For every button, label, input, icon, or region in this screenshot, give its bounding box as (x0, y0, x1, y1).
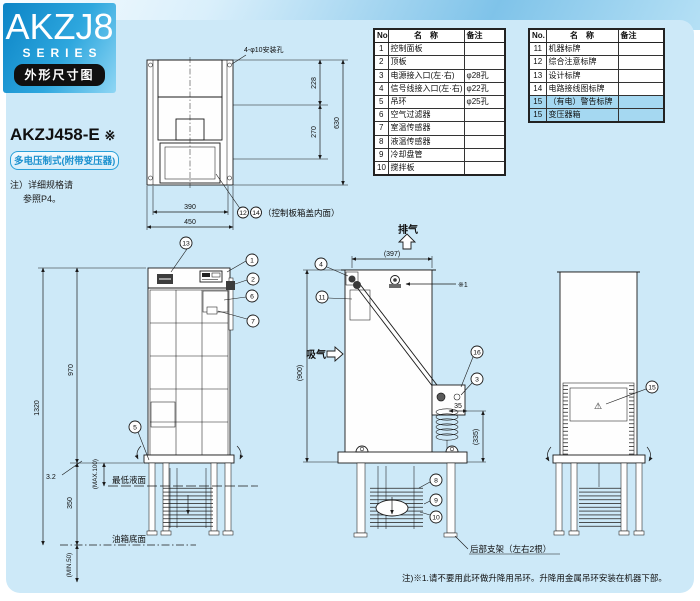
cell-no: 13 (529, 69, 546, 82)
callout-5: 5 (133, 425, 137, 432)
callout-3: 3 (475, 377, 479, 384)
cell-remark: φ22孔 (464, 82, 505, 95)
table-header-row: No. 名 称 备注 (374, 29, 505, 43)
col-header-name: 名 称 (546, 29, 618, 43)
cell-remark (618, 43, 664, 56)
dim-228-label: 228 (311, 77, 318, 89)
table-row: 10搅拌板 (374, 161, 505, 175)
cell-remark (618, 109, 664, 123)
dim-350-label: 350 (67, 497, 74, 509)
side-view-drawing: 排气 ※1 吸气 (397) (297, 223, 560, 554)
callout-16: 16 (473, 350, 481, 357)
cell-name: 顶板 (388, 56, 464, 69)
model-ref-mark: ※ (105, 128, 116, 143)
min-50-label: (MIN.50) (66, 553, 73, 578)
cell-remark (464, 56, 505, 69)
cell-name: 设计标牌 (546, 69, 618, 82)
callout-9: 9 (434, 498, 438, 505)
table-row: 7室温传感器 (374, 122, 505, 135)
cell-no: 2 (374, 56, 388, 69)
spec-note-line2: 参照P4。 (10, 193, 160, 207)
cell-no: 7 (374, 122, 388, 135)
table-row: 1控制面板 (374, 43, 505, 56)
dim-3-2-label: 3.2 (46, 474, 56, 481)
cell-name: 控制面板 (388, 43, 464, 56)
warning-triangle-icon: ⚠ (594, 401, 602, 411)
dim-900-label: (900) (297, 365, 304, 381)
callout-13: 13 (182, 241, 190, 248)
callout-15: 15 (648, 385, 656, 392)
col-header-no: No. (529, 29, 546, 43)
tank-bottom-label: 油箱底面 (112, 534, 147, 544)
cell-name: 信号线接入口(左·右) (388, 82, 464, 95)
cell-no: 11 (529, 43, 546, 56)
series-logo-subtitle: SERIES (3, 46, 116, 60)
table-row-highlighted: 15变压器箱 (529, 109, 664, 123)
callout-10: 10 (432, 515, 440, 522)
table-row: 5吊环φ25孔 (374, 95, 505, 108)
footer-note: 注)※1.请不要用此环做升降用吊环。升降用金属吊环安装在机器下部。 (402, 572, 667, 584)
table-row: 3电源接入口(左·右)φ28孔 (374, 69, 505, 82)
min-liquid-label: 最低液面 (112, 475, 147, 485)
spec-note-line1: 注）详细规格请 (10, 179, 160, 193)
callout-6: 6 (250, 294, 254, 301)
callout-note: （控制板箱盖内面） (263, 208, 340, 218)
cell-name: 室温传感器 (388, 122, 464, 135)
table-row: 13设计标牌 (529, 69, 664, 82)
callout-2: 2 (251, 277, 255, 284)
cell-no: 14 (529, 82, 546, 95)
table-row: 11机器标牌 (529, 43, 664, 56)
cell-no: 8 (374, 135, 388, 148)
dim-270-label: 270 (311, 126, 318, 138)
cell-no: 3 (374, 69, 388, 82)
front-view-drawing: 970 1320 350 3.2 (MAX.100) 最低液面 油箱底面 (MI… (34, 237, 259, 582)
variant-badge: 多电压制式(附带变压器) (10, 151, 119, 170)
table-header-row: No. 名 称 备注 (529, 29, 664, 43)
section-badge: 外形尺寸图 (14, 64, 104, 86)
rear-bracket-label: 后部支架（左右2根） (470, 544, 551, 554)
table-row: 6空气过滤器 (374, 109, 505, 122)
callout-7: 7 (251, 319, 255, 326)
col-header-name: 名 称 (388, 29, 464, 43)
intake-label: 吸气 (306, 348, 326, 361)
cell-name: 变压器箱 (546, 109, 618, 123)
callout-12: 12 (239, 210, 247, 217)
dim-397-label: (397) (384, 251, 400, 258)
cell-name: 电路接线图标牌 (546, 82, 618, 95)
table-row: 4信号线接入口(左·右)φ22孔 (374, 82, 505, 95)
dim-1320-label: 1320 (34, 400, 41, 416)
cell-name: 搅拌板 (388, 161, 464, 175)
cell-name: 冷却盘管 (388, 148, 464, 161)
cell-no: 4 (374, 82, 388, 95)
col-header-remark: 备注 (464, 29, 505, 43)
cell-no: 9 (374, 148, 388, 161)
col-header-remark: 备注 (618, 29, 664, 43)
callout-14: 14 (252, 210, 260, 217)
table-row: 8液温传感器 (374, 135, 505, 148)
table-row: 9冷却盘管 (374, 148, 505, 161)
cell-remark (618, 82, 664, 95)
cell-name: 综合注意标牌 (546, 56, 618, 69)
top-view-drawing: 228 270 630 390 450 4-φ10安装孔 12 14 （控制板箱… (147, 45, 348, 230)
cell-no: 10 (374, 161, 388, 175)
cell-remark (464, 109, 505, 122)
dim-390-label: 390 (184, 204, 196, 211)
cell-name: 空气过滤器 (388, 109, 464, 122)
cell-no: 12 (529, 56, 546, 69)
cell-remark: φ25孔 (464, 95, 505, 108)
table-row-highlighted: 15（有电）警告标牌 (529, 95, 664, 108)
callout-1: 1 (250, 258, 254, 265)
table-row: 14电路接线图标牌 (529, 82, 664, 95)
dim-335-label: (335) (473, 429, 480, 445)
callout-8: 8 (434, 478, 438, 485)
table-row: 2顶板 (374, 56, 505, 69)
cell-remark (618, 95, 664, 108)
parts-table-right: No. 名 称 备注 11机器标牌 12综合注意标牌 13设计标牌 14电路接线… (528, 28, 665, 123)
cell-name: 液温传感器 (388, 135, 464, 148)
cell-name: 机器标牌 (546, 43, 618, 56)
cell-remark (464, 43, 505, 56)
parts-table-left: No. 名 称 备注 1控制面板 2顶板 3电源接入口(左·右)φ28孔 4信号… (373, 28, 506, 176)
cell-no: 15 (529, 109, 546, 123)
dim-450-label: 450 (184, 219, 196, 226)
spec-note: 注）详细规格请 参照P4。 (10, 179, 160, 207)
callout-11: 11 (318, 295, 325, 302)
catalog-page: 228 270 630 390 450 4-φ10安装孔 12 14 （控制板箱… (0, 0, 700, 601)
callout-4: 4 (319, 262, 323, 269)
table-row: 12综合注意标牌 (529, 56, 664, 69)
model-name: AKZJ458-E (10, 125, 100, 144)
series-logo-title: AKZJ8 (3, 9, 116, 45)
cell-remark (464, 161, 505, 175)
cell-remark (618, 69, 664, 82)
cell-remark (464, 122, 505, 135)
cell-remark (464, 148, 505, 161)
cell-remark: φ28孔 (464, 69, 505, 82)
ref-star1-label: ※1 (458, 282, 468, 289)
dim-630-label: 630 (334, 117, 341, 129)
cell-remark (618, 56, 664, 69)
cell-no: 6 (374, 109, 388, 122)
cell-no: 5 (374, 95, 388, 108)
rear-view-drawing: ⚠ 15 (547, 272, 658, 535)
exhaust-label: 排气 (398, 223, 418, 236)
cell-no: 15 (529, 95, 546, 108)
cell-name: 电源接入口(左·右) (388, 69, 464, 82)
mount-hole-label: 4-φ10安装孔 (244, 45, 284, 54)
cell-remark (464, 135, 505, 148)
dim-35-label: 35 (454, 403, 462, 410)
max-100-label: (MAX.100) (92, 459, 99, 489)
dim-970-label: 970 (68, 364, 75, 376)
series-logo: AKZJ8 SERIES 外形尺寸图 (3, 3, 116, 93)
cell-name: （有电）警告标牌 (546, 95, 618, 108)
col-header-no: No. (374, 29, 388, 43)
model-block: AKZJ458-E ※ 多电压制式(附带变压器) 注）详细规格请 参照P4。 (10, 125, 160, 207)
cell-name: 吊环 (388, 95, 464, 108)
model-title: AKZJ458-E ※ (10, 125, 160, 145)
cell-no: 1 (374, 43, 388, 56)
